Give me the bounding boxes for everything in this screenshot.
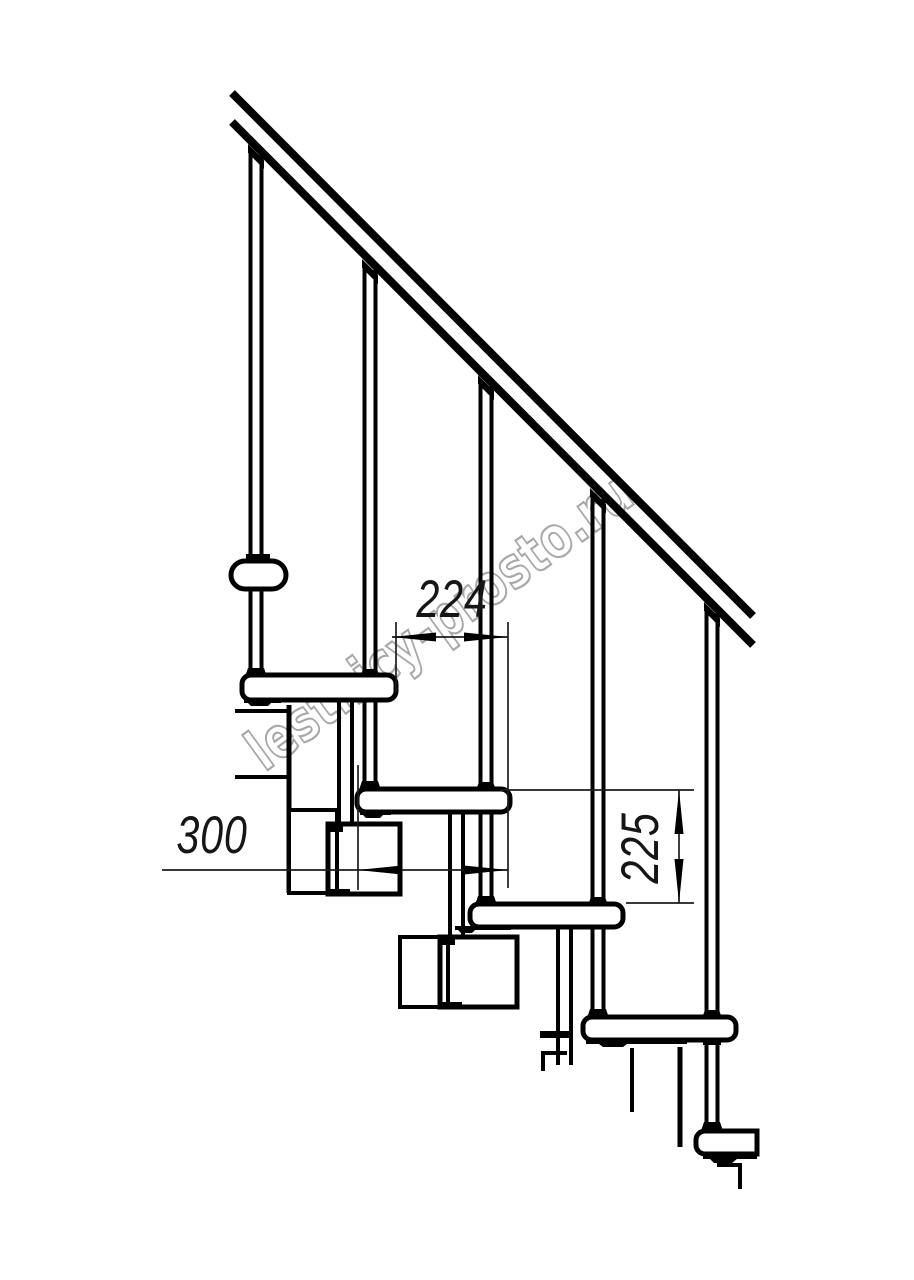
arrowhead-left (358, 866, 402, 875)
lower-flight-handrail-end (231, 554, 286, 589)
spine-bracket (328, 889, 350, 895)
tread-4 (583, 1017, 736, 1040)
baluster-5-clamp (702, 1010, 722, 1018)
tread-5 (696, 1131, 757, 1154)
baluster-4 (593, 498, 604, 1014)
baluster-3 (481, 385, 492, 901)
tread-3 (470, 904, 623, 927)
dimension-rise-label: 225 (611, 812, 670, 884)
spine-bracket (440, 937, 455, 945)
baluster-3-flange (475, 896, 497, 905)
spine-box (440, 937, 517, 1007)
baluster-5-flange (701, 1122, 723, 1131)
staircase-drawing: lestnicy-prosto.ru (0, 0, 914, 1280)
dimension-rise: 225 (500, 790, 694, 903)
bracket-under-tread-5 (703, 1153, 757, 1163)
baluster-2-flange (359, 781, 381, 790)
baluster-5 (707, 612, 718, 1127)
arrowhead-right (464, 633, 508, 642)
dimension-tread-depth-label: 300 (176, 806, 247, 865)
baluster-1-flange (245, 668, 267, 677)
spine-hook (717, 1165, 740, 1189)
spine-bracket (328, 824, 343, 832)
balusters (251, 154, 718, 1127)
baluster-4-clamp (588, 897, 608, 905)
tread-1 (242, 675, 396, 700)
staircase-drawing-page: lestnicy-prosto.ru (0, 0, 914, 1280)
spine-bracket (440, 1002, 462, 1008)
bracket-under-tread-3 (455, 926, 511, 933)
baluster-5-lower-clamp (703, 1040, 721, 1045)
spine-plate (540, 1031, 573, 1038)
bracket-under-tread-2 (360, 811, 391, 818)
handrail-end-capsule (231, 561, 286, 589)
tread-2 (357, 789, 510, 812)
dimension-going-label: 224 (415, 570, 487, 629)
baluster-1 (251, 154, 262, 673)
spine-hook (543, 1053, 567, 1071)
baluster-4-flange (587, 1009, 609, 1018)
baluster-2-clamp (360, 669, 380, 677)
bracket-under-tread-4 (586, 1039, 687, 1047)
arrowhead-down (675, 859, 684, 903)
spine-modules (235, 699, 740, 1189)
arrowhead-up (675, 790, 684, 834)
baluster-3-clamp (476, 782, 496, 790)
arrowhead-right (464, 866, 508, 875)
